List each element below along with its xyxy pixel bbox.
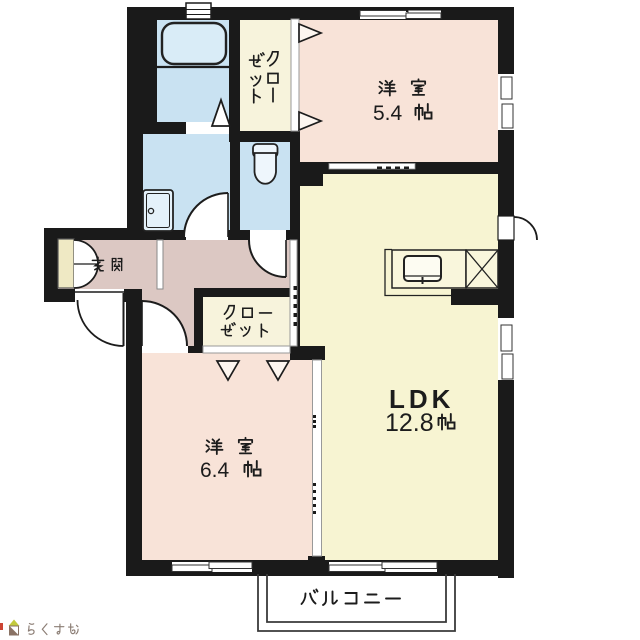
svg-text:5.4: 5.4 — [373, 102, 403, 125]
svg-text:12.8: 12.8 — [385, 409, 434, 437]
svg-text:6.4: 6.4 — [200, 459, 230, 482]
